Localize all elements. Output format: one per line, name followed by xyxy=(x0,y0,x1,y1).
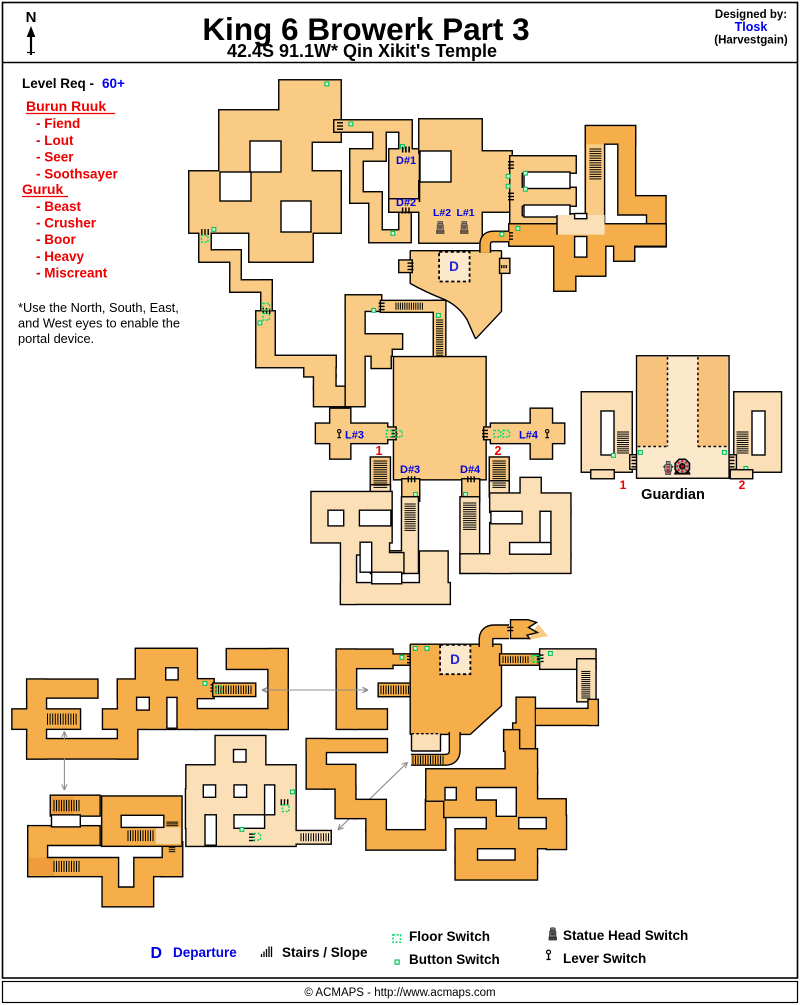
svg-text:D#3: D#3 xyxy=(400,464,420,476)
svg-text:Level Req -: Level Req - xyxy=(22,76,94,91)
svg-text:L#3: L#3 xyxy=(345,430,364,442)
svg-text:and West eyes to enable the: and West eyes to enable the xyxy=(18,316,180,331)
svg-text:portal device.: portal device. xyxy=(18,331,94,346)
svg-text:1: 1 xyxy=(620,478,627,492)
svg-text:© ACMAPS - http://www.acmaps.c: © ACMAPS - http://www.acmaps.com xyxy=(304,987,495,999)
svg-text:Guardian: Guardian xyxy=(641,487,705,503)
svg-text:Statue Head Switch: Statue Head Switch xyxy=(563,928,688,943)
svg-text:2: 2 xyxy=(739,478,746,492)
svg-text:Lever Switch: Lever Switch xyxy=(563,951,646,966)
svg-text:D: D xyxy=(151,945,163,962)
svg-text:- Lout: - Lout xyxy=(36,133,74,148)
svg-text:L#2: L#2 xyxy=(433,207,451,219)
svg-text:Guruk: Guruk xyxy=(22,181,63,197)
svg-text:D#1: D#1 xyxy=(396,155,416,167)
svg-text:- Crusher: - Crusher xyxy=(36,216,97,231)
svg-text:2: 2 xyxy=(495,444,502,458)
svg-text:- Seer: - Seer xyxy=(36,150,74,165)
svg-text:- Fiend: - Fiend xyxy=(36,116,80,131)
svg-text:*Use the North, South, East,: *Use the North, South, East, xyxy=(18,300,179,315)
svg-text:60+: 60+ xyxy=(102,76,125,91)
svg-text:Tlosk: Tlosk xyxy=(735,20,768,34)
svg-text:- Beast: - Beast xyxy=(36,199,82,214)
svg-text:- Soothsayer: - Soothsayer xyxy=(36,166,119,181)
svg-text:Stairs / Slope: Stairs / Slope xyxy=(282,945,368,960)
svg-text:(Harvestgain): (Harvestgain) xyxy=(714,35,788,47)
svg-text:Button Switch: Button Switch xyxy=(409,952,500,967)
svg-text:D: D xyxy=(450,652,460,667)
svg-text:- Miscreant: - Miscreant xyxy=(36,265,108,280)
svg-text:1: 1 xyxy=(376,444,383,458)
svg-text:D#4: D#4 xyxy=(460,464,481,476)
svg-text:N: N xyxy=(26,9,37,26)
svg-text:D#2: D#2 xyxy=(396,197,416,209)
svg-text:42.4S 91.1W* Qin Xikit's Templ: 42.4S 91.1W* Qin Xikit's Temple xyxy=(227,41,497,61)
svg-text:Floor Switch: Floor Switch xyxy=(409,929,490,944)
svg-text:L#4: L#4 xyxy=(519,430,539,442)
svg-text:D: D xyxy=(449,259,459,274)
svg-text:Burun Ruuk: Burun Ruuk xyxy=(26,98,106,114)
svg-text:- Boor: - Boor xyxy=(36,232,76,247)
svg-text:- Heavy: - Heavy xyxy=(36,249,85,264)
svg-text:Departure: Departure xyxy=(173,945,237,960)
svg-text:L#1: L#1 xyxy=(457,207,475,219)
